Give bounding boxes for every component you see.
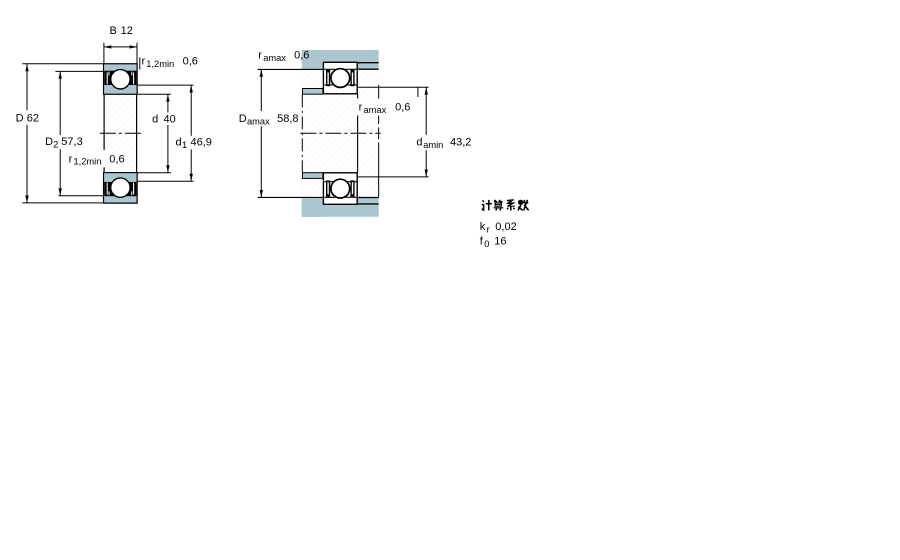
svg-text:amin: amin (423, 140, 443, 150)
svg-text:d: d (176, 137, 182, 149)
svg-text:0: 0 (484, 239, 489, 249)
svg-text:B: B (110, 25, 117, 37)
svg-text:0,02: 0,02 (495, 221, 516, 233)
svg-text:0,6: 0,6 (395, 101, 410, 113)
svg-text:d: d (416, 136, 422, 148)
svg-text:amax: amax (263, 53, 286, 63)
svg-text:1,2min: 1,2min (74, 157, 102, 167)
svg-text:58,8: 58,8 (277, 113, 298, 125)
svg-text:43,2: 43,2 (450, 136, 471, 148)
svg-text:r: r (258, 50, 262, 62)
svg-text:r: r (142, 56, 146, 68)
svg-text:k: k (480, 221, 486, 233)
svg-text:0,6: 0,6 (109, 153, 124, 165)
svg-text:amax: amax (247, 116, 270, 126)
svg-text:1,2min: 1,2min (146, 59, 174, 69)
svg-text:16: 16 (494, 236, 506, 248)
svg-text:r: r (487, 224, 490, 234)
svg-text:12: 12 (121, 25, 133, 37)
svg-text:D: D (16, 112, 24, 124)
svg-text:0,6: 0,6 (294, 50, 309, 62)
svg-text:62: 62 (27, 112, 39, 124)
svg-text:46,9: 46,9 (191, 137, 212, 149)
svg-text:d: d (152, 113, 158, 125)
svg-text:amax: amax (364, 105, 387, 115)
svg-text:40: 40 (164, 113, 176, 125)
svg-text:D: D (239, 113, 247, 125)
svg-text:0,6: 0,6 (183, 56, 198, 68)
svg-text:D: D (45, 136, 53, 148)
svg-text:r: r (359, 101, 363, 113)
svg-text:r: r (69, 153, 73, 165)
svg-text:2: 2 (53, 140, 58, 150)
svg-text:1: 1 (182, 140, 187, 150)
svg-text:57,3: 57,3 (61, 136, 82, 148)
